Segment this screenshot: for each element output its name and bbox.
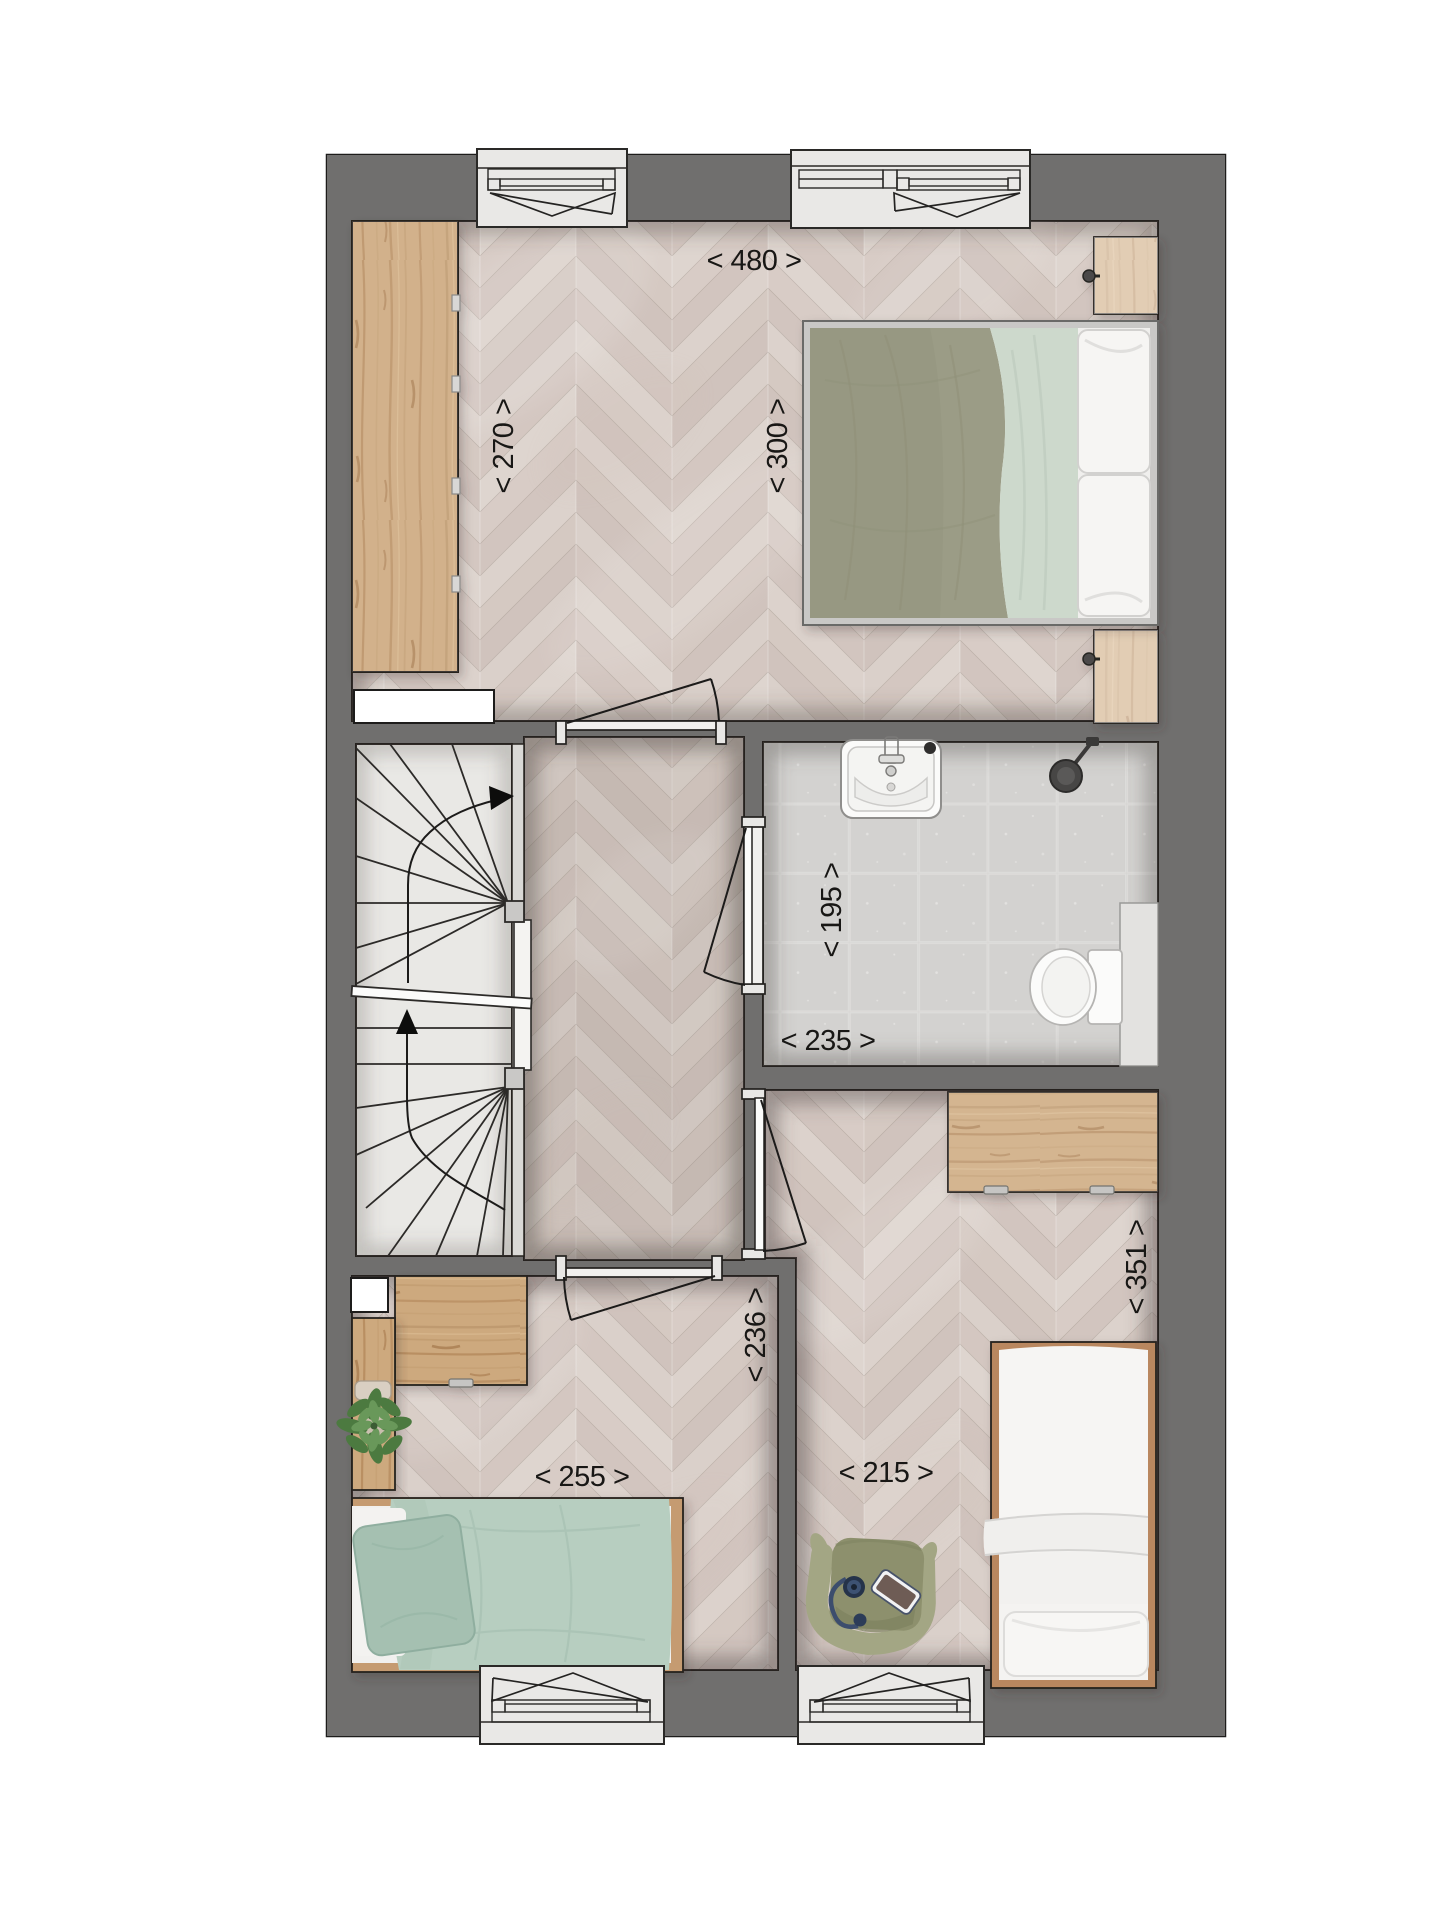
svg-text:< 270 >: < 270 > bbox=[488, 399, 520, 494]
svg-text:< 300 >: < 300 > bbox=[762, 399, 794, 494]
svg-text:< 351 >: < 351 > bbox=[1121, 1220, 1153, 1315]
svg-text:< 480 >: < 480 > bbox=[707, 245, 802, 277]
svg-text:< 215 >: < 215 > bbox=[839, 1457, 934, 1489]
svg-text:< 255 >: < 255 > bbox=[535, 1461, 630, 1493]
svg-text:< 235 >: < 235 > bbox=[781, 1025, 876, 1057]
svg-text:< 195 >: < 195 > bbox=[816, 863, 848, 958]
svg-text:< 236 >: < 236 > bbox=[740, 1288, 772, 1383]
